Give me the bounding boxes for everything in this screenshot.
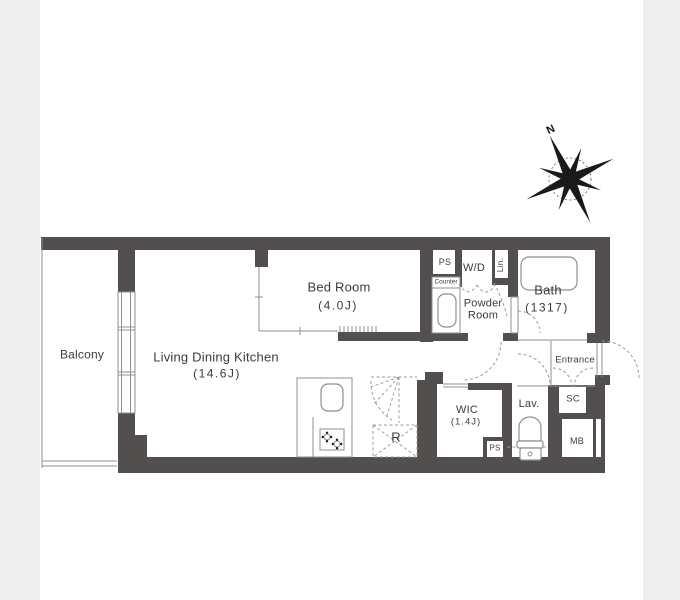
bath-door-leaf xyxy=(511,297,518,333)
bath-fixtures xyxy=(511,257,587,340)
sc-label: SC xyxy=(566,395,580,406)
wall-kitchen-east xyxy=(417,380,437,457)
refrigerator-label: R xyxy=(391,431,401,446)
linen-label: Lin. xyxy=(496,258,506,273)
wd-label: W/D xyxy=(463,262,485,274)
wall-bath-west xyxy=(508,250,518,297)
wall-right-upper xyxy=(595,250,610,343)
powder-room-label: Powder Room xyxy=(464,298,503,323)
toilet-bowl xyxy=(519,417,541,441)
compass-rose xyxy=(506,115,634,243)
wall-powder-south xyxy=(425,333,468,341)
mb-label: MB xyxy=(570,436,584,446)
wall-top xyxy=(41,237,610,250)
wall-bathdoor-stub xyxy=(503,333,518,341)
balcony-label: Balcony xyxy=(60,348,104,361)
wic-size-label: (1.4J) xyxy=(451,418,481,429)
lav-label: Lav. xyxy=(519,398,540,410)
folding-door xyxy=(371,377,417,423)
wall-center-column xyxy=(420,250,433,342)
floorplan-canvas: Balcony Living Dining Kitchen (14.6J) Be… xyxy=(0,0,680,600)
mail-box-edge xyxy=(596,419,601,457)
balcony-window xyxy=(118,292,135,413)
bedroom-label: Bed Room xyxy=(307,281,370,296)
kitchen-sink xyxy=(321,384,343,411)
wall-step xyxy=(135,435,147,473)
stove xyxy=(320,429,344,450)
wall-wic-north xyxy=(468,383,512,390)
ps-bottom-label: PS xyxy=(489,445,500,454)
wall-balcony-lower xyxy=(118,413,135,473)
front-door-arc xyxy=(602,341,639,378)
lav-door-arc xyxy=(518,354,550,386)
wall-bedroom-south xyxy=(338,332,420,341)
ldk-size-label: (14.6J) xyxy=(193,367,241,380)
counter-label: Counter xyxy=(434,278,457,285)
ps-top-label: PS xyxy=(439,257,451,267)
front-door-leaf xyxy=(597,343,602,377)
powder-sink xyxy=(438,294,456,327)
kitchen xyxy=(297,378,352,457)
wall-bath-south-stub xyxy=(587,333,610,343)
toilet-tank xyxy=(520,448,541,460)
bath-size-label: (1317) xyxy=(525,301,569,314)
bedroom-size-label: (4.0J) xyxy=(318,299,358,312)
wall-lin-bottom xyxy=(492,278,518,285)
ldk-label: Living Dining Kitchen xyxy=(153,351,279,366)
wall-bedroom-stub xyxy=(255,250,268,267)
toilet-icon xyxy=(507,417,548,460)
entrance-label: Entrance xyxy=(555,356,595,367)
wall-balcony-upper xyxy=(118,250,135,292)
entrance-double-arc xyxy=(553,368,593,387)
wic-sliding-door xyxy=(443,384,468,387)
wic-label: WIC xyxy=(456,404,478,416)
powder-door-arc xyxy=(463,342,501,380)
bath-label: Bath xyxy=(534,284,562,299)
